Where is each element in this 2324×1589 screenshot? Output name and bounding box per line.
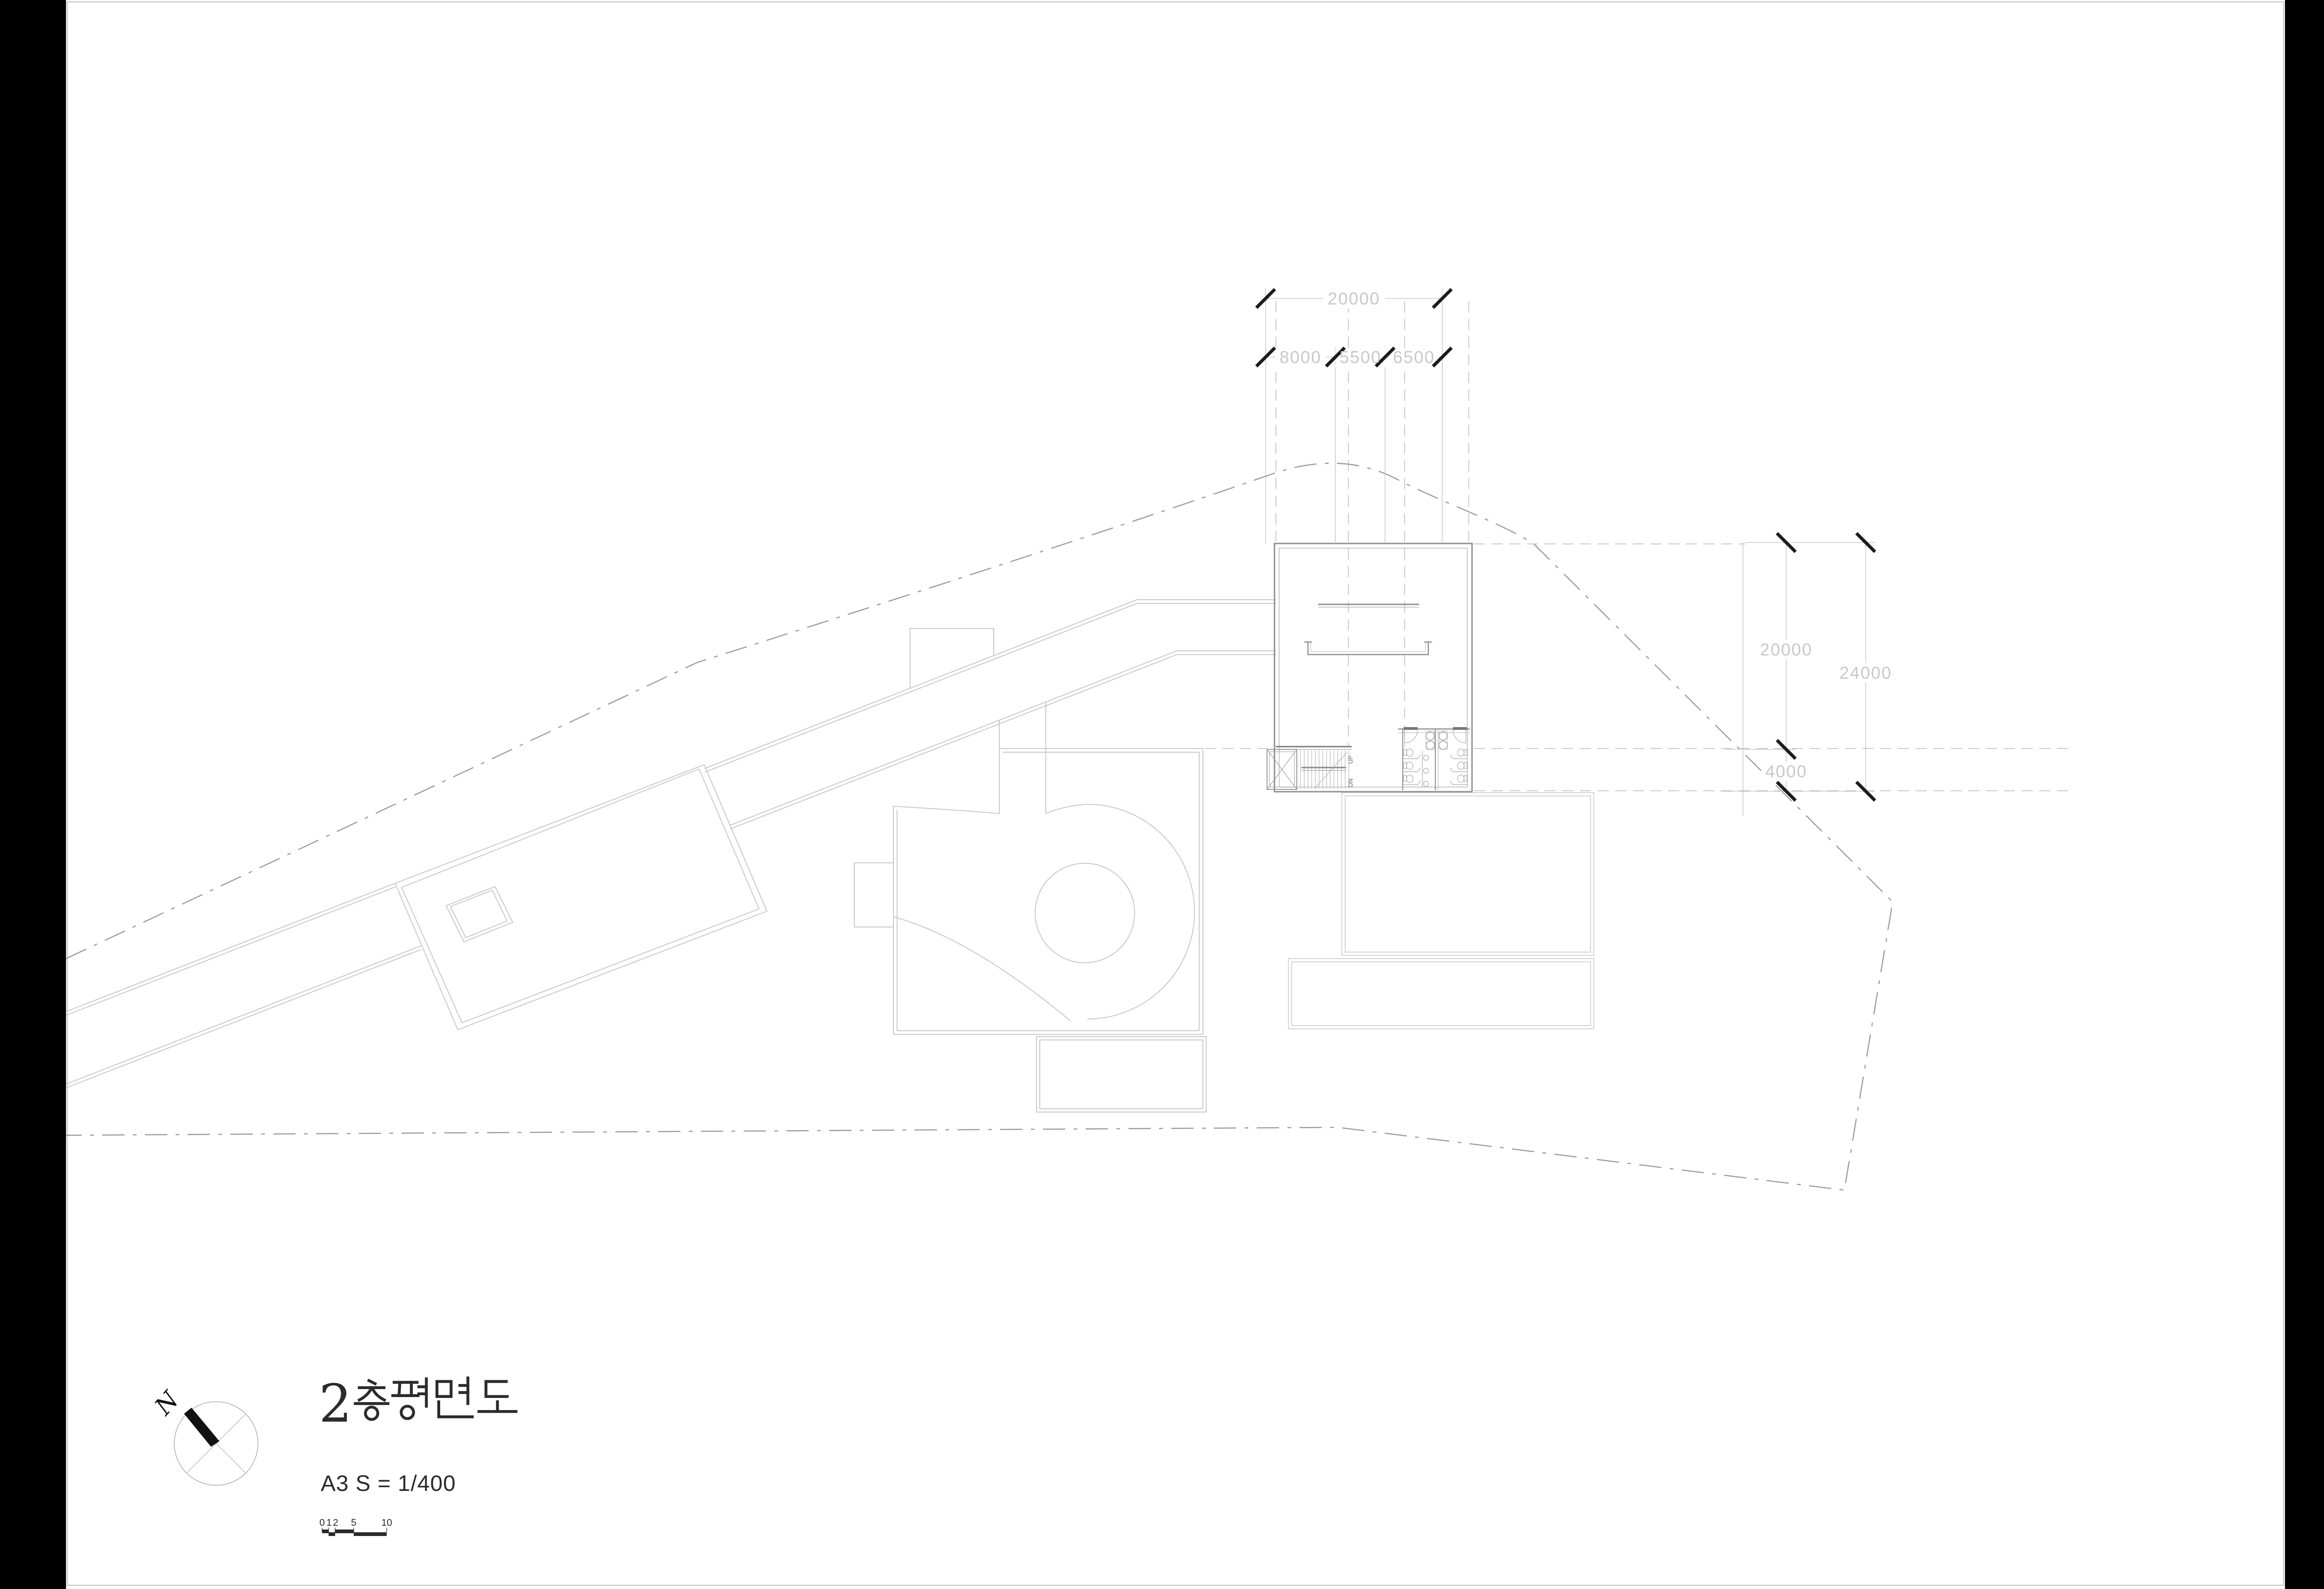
dim-right-total: 24000 <box>1840 663 1892 682</box>
scale-tick-2: 2 <box>333 1517 338 1528</box>
stair-up-label: UP <box>1347 755 1354 764</box>
dim-top-seg-2: 5500 <box>1340 348 1381 367</box>
dim-top-seg-3: 6500 <box>1393 348 1435 367</box>
stair-down-label: DN <box>1347 779 1354 788</box>
scale-tick-5: 5 <box>351 1517 357 1528</box>
sheet-scale-label: A3 S = 1/400 <box>321 1471 456 1496</box>
dim-right-lower: 4000 <box>1765 762 1807 781</box>
restroom-door-left <box>1404 727 1418 730</box>
dim-right-upper: 20000 <box>1760 640 1813 659</box>
dim-top-total: 20000 <box>1328 289 1380 308</box>
paper-background <box>0 0 2324 1589</box>
dim-top-seg-1: 8000 <box>1280 348 1321 367</box>
scale-bar: 0 1 2 5 10 <box>319 1517 392 1536</box>
scale-tick-1: 1 <box>326 1517 332 1528</box>
restroom-door-right <box>1453 727 1467 730</box>
scale-tick-10: 10 <box>381 1517 392 1528</box>
letterbox-left <box>0 0 66 1589</box>
letterbox-right <box>2285 0 2324 1589</box>
floor-plan-canvas: UP DN <box>0 0 2324 1589</box>
scale-tick-0: 0 <box>319 1517 325 1528</box>
title-numeral: 2 <box>319 1374 352 1434</box>
